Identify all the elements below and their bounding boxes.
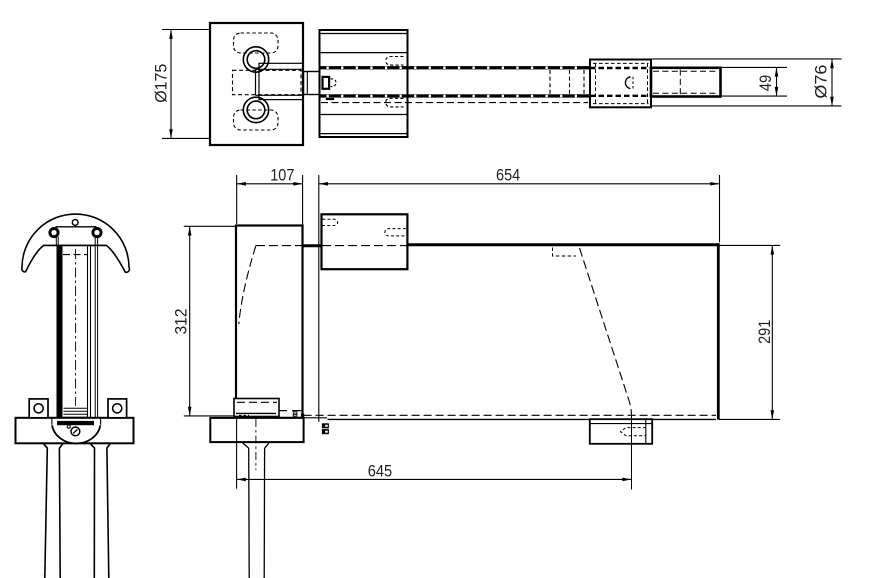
svg-text:291: 291 xyxy=(755,320,774,344)
svg-text:654: 654 xyxy=(496,165,520,184)
svg-text:107: 107 xyxy=(270,165,294,184)
svg-text:Ø175: Ø175 xyxy=(152,64,171,103)
svg-text:312: 312 xyxy=(171,309,190,335)
svg-text:49: 49 xyxy=(756,75,775,92)
svg-text:Ø76: Ø76 xyxy=(811,65,830,99)
svg-text:645: 645 xyxy=(368,462,392,481)
